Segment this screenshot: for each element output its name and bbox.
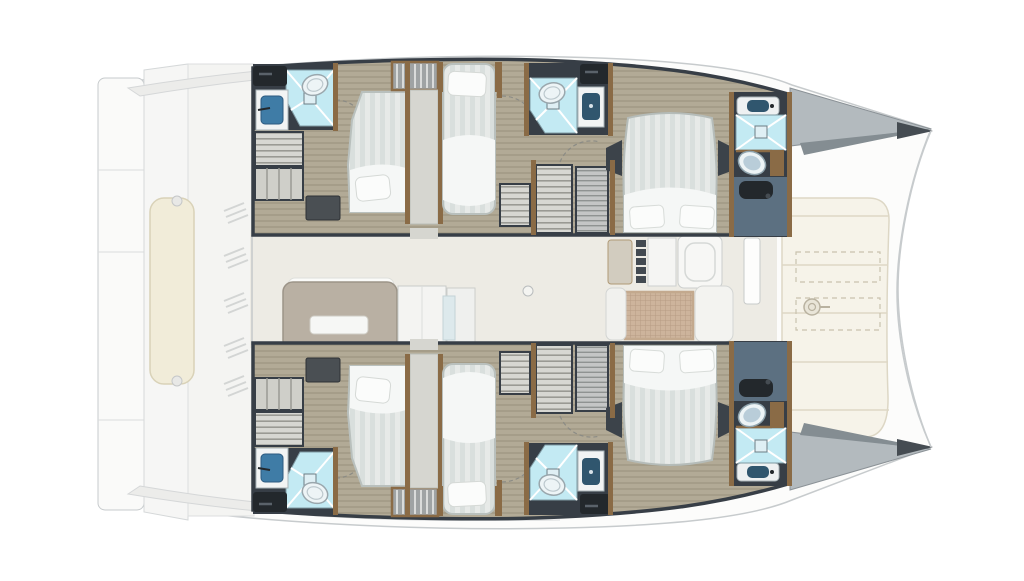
aft-cabin-double-bed [348, 92, 406, 212]
glass-front-fridge [443, 296, 455, 340]
deck-fitting-circle [523, 286, 533, 296]
sun-lounge-cushions [782, 198, 889, 438]
galley-island-sink [310, 316, 368, 334]
pillow [629, 205, 664, 229]
shelf-unit [536, 165, 572, 233]
bench-hinge-bottom [172, 376, 182, 386]
cockpit-bench [150, 198, 194, 384]
corridor [410, 90, 438, 224]
saloon [250, 230, 777, 350]
sink-basin [747, 100, 769, 112]
galley-cabinet [648, 238, 676, 286]
pillow [355, 174, 391, 201]
settee-right [695, 286, 733, 342]
shelf-unit [500, 184, 530, 226]
pillow [679, 205, 714, 229]
faucet [770, 104, 774, 108]
bench-hinge-top [172, 196, 182, 206]
mast-post [744, 238, 760, 304]
sink-basin [261, 96, 283, 124]
black-counter [580, 64, 610, 84]
shower-drain [755, 126, 767, 138]
faucet [589, 104, 593, 108]
dark-cabinet [306, 196, 340, 220]
hanging-locker [576, 167, 608, 233]
pillow [447, 71, 486, 97]
nav-seat [608, 240, 632, 284]
settee-left [606, 288, 626, 340]
shelf-unit [255, 132, 303, 166]
dining-table [625, 292, 693, 339]
cooktop-knobs [636, 240, 646, 283]
cockpit-floor [188, 64, 254, 516]
corridor-opening [410, 228, 438, 239]
black-counter [253, 66, 287, 86]
transom-platforms [98, 78, 144, 510]
mid-head [528, 63, 610, 135]
floor-plan-canvas [0, 0, 1024, 581]
foredeck [782, 198, 889, 438]
catamaran-floor-plan [0, 0, 1024, 581]
